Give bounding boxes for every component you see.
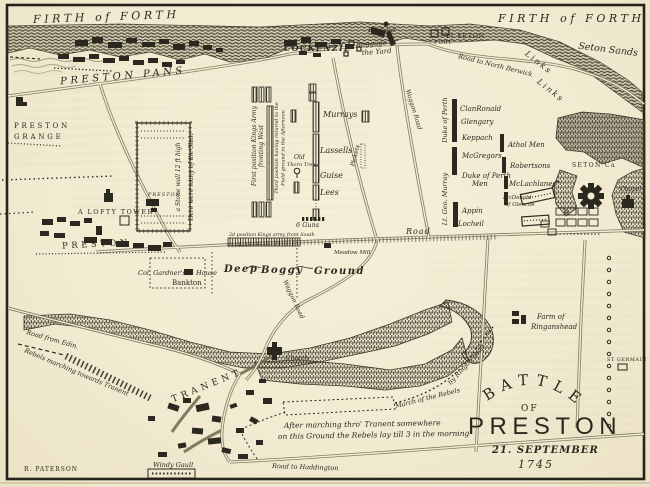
first-position-note-line1: First position Kings Army (251, 105, 258, 187)
preston-grange-label-line1: PRESTON (14, 122, 70, 130)
rebels-night-position-outline (283, 397, 395, 415)
firth-of-forth-label-east: FIRTH of FORTH (497, 12, 645, 25)
title-preston: PRESTON (468, 413, 622, 440)
lassells-label: Lassells (319, 146, 352, 155)
robertsons-label: Robertsons (509, 162, 551, 170)
third-position-note-line2: Field ground in the Afternoon (281, 110, 287, 187)
lofty-tower-label: A LOFTY TOWER (77, 208, 154, 216)
mclachlanes-label: McLachlanes (508, 180, 556, 188)
windy-gaull-label: Windy Gaull (153, 461, 193, 469)
title-date: 21. SEPTEMBER (491, 445, 599, 456)
chapel-label: Chapel (620, 186, 641, 193)
tranent-buildings (148, 379, 272, 459)
stone-wall-note: a Stone wall 12 ft high (175, 142, 182, 211)
night-note-line1: After marching thro' Tranent somewhere (283, 418, 441, 430)
appin-label: Appin (461, 207, 483, 215)
second-position-note: 2d position Kings army front South (228, 232, 315, 238)
title-block: BATTLE OF PRESTON 21. SEPTEMBER 1745 (468, 371, 622, 471)
harbour-label: Harbour (367, 26, 397, 34)
march-of-rebels-label-line1: March of the Rebels (393, 386, 461, 410)
locheil-label: Locheil (457, 220, 484, 228)
mcdonald-label-line1: McDonald (502, 195, 532, 201)
windy-gaull-icon (148, 469, 195, 478)
farm-ringanshead-label-line2: Ringanshead (530, 323, 578, 331)
mcgregors-label: McGregors (461, 152, 502, 160)
map-page: FIRTH of FORTH FIRTH of FORTH Seton Sand… (0, 0, 650, 487)
baggage-label-line2: the Yard (362, 47, 393, 57)
murrays-label: Murrays (322, 110, 357, 119)
keppach-label: Keppach (461, 134, 493, 142)
firth-of-forth-label-west: FIRTH of FORTH (32, 8, 180, 26)
road-label: Road (405, 227, 431, 236)
slain-note: Here were many of the Slain (188, 133, 195, 222)
lord-george-murray-wing-label: Lt. Geo. Murray (441, 172, 449, 226)
tree-avenue (607, 256, 610, 427)
guise-label: Guise (320, 171, 343, 180)
waggon-road-label-lower: Waggon Road (281, 279, 305, 320)
duke-of-perth-wing-label: Duke of Perth (441, 97, 449, 143)
meadow-mill-label: Meadow Mill (333, 250, 371, 256)
night-note-line2: on this Ground the Rebels lay till 3 in … (278, 429, 470, 441)
road-to-haddington-label: Road to Haddington (271, 462, 339, 472)
athol-men-label: Athol Men (507, 141, 545, 149)
port-seton-label: Pt SETON (446, 33, 485, 40)
bankton-label: Bankton (172, 279, 202, 287)
ringanshead-farm-icon (512, 311, 526, 324)
third-position-note-line1: Third position having returnd to the (274, 102, 280, 194)
cockenzie-label: COCKENZIE (284, 43, 351, 53)
road-to-north-berwick-label: Road to North Berwick (457, 52, 534, 78)
engraver-signature: R. PATERSON (24, 466, 78, 473)
rebel-march-marks (18, 326, 494, 460)
lees-label: Lees (319, 188, 339, 197)
title-year: 1745 (518, 458, 554, 471)
church-label: Church (286, 355, 309, 362)
preston-pans-label: PRESTON PANS (59, 65, 186, 87)
old-thorn-label-line1: Old (294, 154, 305, 161)
preston-grange-label-line2: GRANGE (14, 133, 64, 141)
duke-of-perth-men-label-line1: Duke of Perth (461, 172, 511, 180)
col-gardners-label: Col. Gardner's (138, 269, 186, 277)
first-position-note-line2: fronting West (258, 124, 265, 168)
old-thorn-tree-icon (294, 168, 300, 178)
duke-of-perth-men-label-line2: Men (471, 180, 488, 188)
st-germain-house-icon (618, 364, 627, 370)
boggy-ground-label: Ground (314, 266, 365, 277)
house-label: House (195, 269, 217, 277)
fort-label: FORT (434, 40, 452, 46)
st-germain-label: ST GERMAIN (607, 357, 647, 363)
links-label-2: Links (534, 77, 566, 104)
clanronald-label: ClanRonald (460, 105, 502, 113)
boggy-deep-label: Deep (223, 264, 258, 275)
battle-map-svg: FIRTH of FORTH FIRTH of FORTH Seton Sand… (0, 0, 650, 487)
lofty-tower-icon (104, 189, 129, 225)
seton-castle-icon (578, 183, 604, 209)
glengary-label: Glengary (461, 118, 494, 126)
meadow-mill-icon (324, 243, 331, 248)
preston-grange-buildings (16, 97, 27, 106)
old-thorn-label-line2: Thorn Tree (287, 162, 315, 168)
farm-ringanshead-label-line1: Farm of (536, 313, 566, 321)
six-guns-label: 6 Guns (296, 221, 320, 229)
seton-castle-label: SETON Ca (572, 162, 616, 169)
rebels-marching-label: Rebels marching towards Tranent (22, 346, 130, 398)
mcdonald-label-line2: of Glencoe (505, 202, 535, 208)
